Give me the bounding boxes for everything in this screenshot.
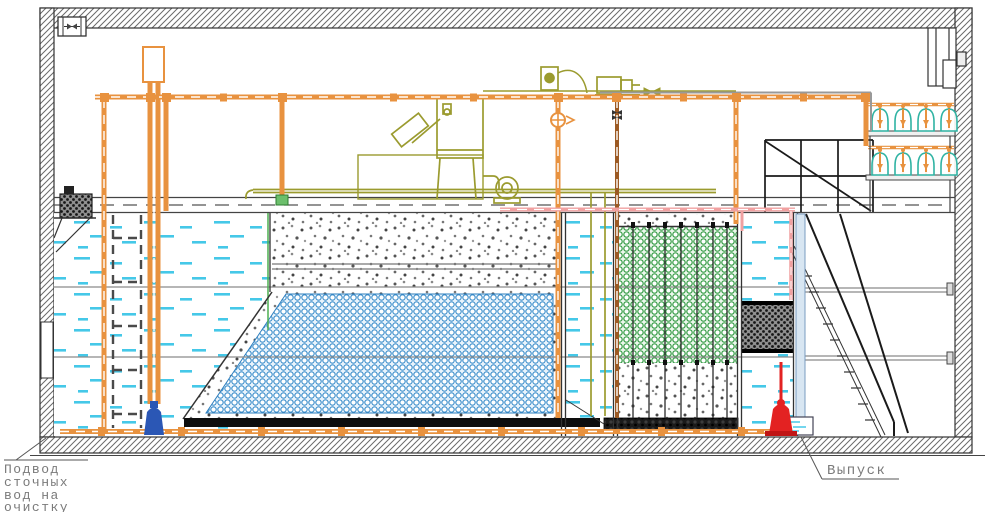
- mesh-top-bar: [742, 301, 793, 305]
- aeration-header: [184, 418, 600, 427]
- floor-slab: [40, 437, 972, 453]
- screen-cabinet: [437, 98, 483, 158]
- air-diffuser-bell: [895, 104, 911, 131]
- ventilation-fan: [58, 17, 86, 36]
- green-biofilter-media: [618, 227, 737, 363]
- top-wall: [40, 8, 972, 28]
- air-diffuser-bell: [918, 104, 934, 131]
- right-wall: [955, 8, 972, 437]
- transfer-channel-water: [566, 213, 613, 425]
- inclined-conveyor: [392, 113, 429, 147]
- air-diffuser-bell: [918, 148, 934, 175]
- green-fitting: [276, 195, 288, 205]
- air-diffuser-bell: [895, 148, 911, 175]
- outlet-pipe: [796, 214, 805, 420]
- control-cable: [558, 70, 587, 93]
- service-stairs: [790, 214, 908, 437]
- wall-sluice: [41, 322, 53, 378]
- fine-mesh-filter: [742, 305, 793, 349]
- platform-railing: [765, 140, 873, 212]
- treatment-plant-drawing: Подвод сточных вод на очистку Выпуск: [0, 0, 1000, 512]
- inlet-label-line4: очистку: [4, 500, 69, 512]
- expansion-tank: [143, 47, 164, 82]
- drawing-canvas: Подвод сточных вод на очистку Выпуск: [0, 0, 1000, 512]
- air-diffuser-bell: [872, 148, 888, 175]
- biofilter-top-gravel: [618, 214, 737, 226]
- air-blower-racks: [866, 104, 957, 212]
- air-diffuser-bell: [872, 104, 888, 131]
- biofilter-bottom-gravel: [618, 363, 737, 418]
- process-zones: [54, 213, 793, 436]
- outlet-label: Выпуск: [827, 463, 886, 479]
- mesh-bottom-bar: [742, 349, 793, 353]
